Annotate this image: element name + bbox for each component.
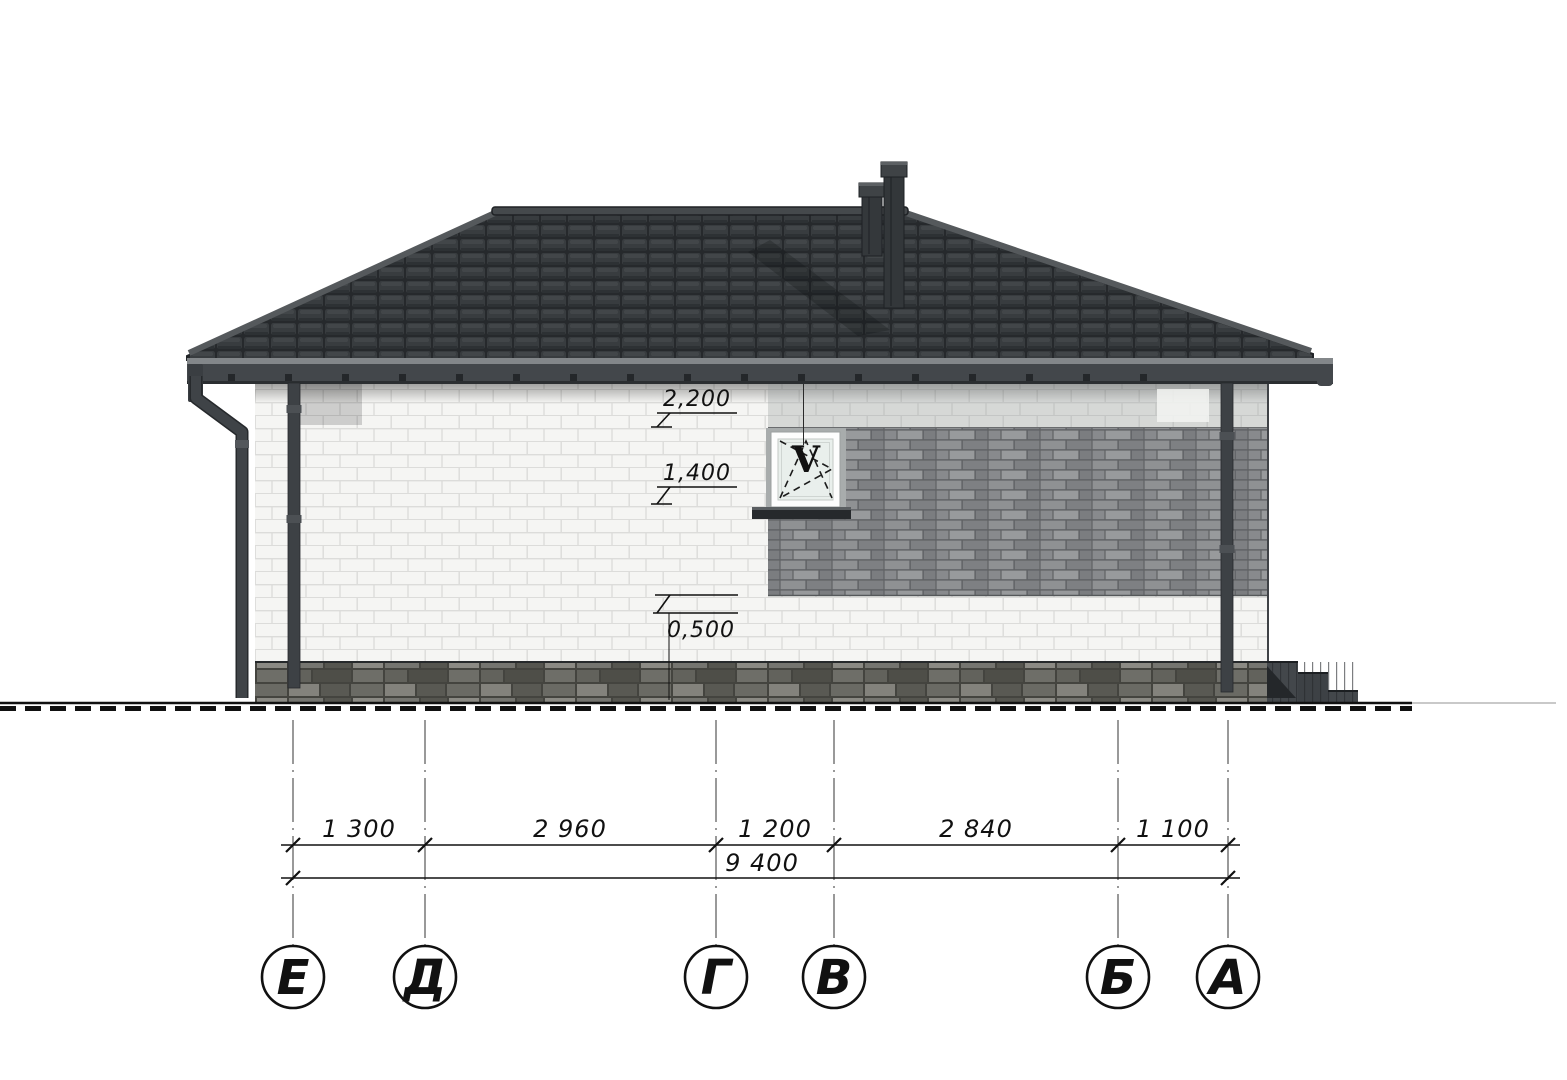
gutter-end-right (1317, 364, 1333, 386)
entry-steps (1267, 662, 1358, 703)
vent-pipe-small (862, 196, 882, 256)
axis-label-D: Д (402, 950, 447, 1006)
axis-bubbles: Е Д Г В Б А (262, 946, 1259, 1008)
axis-bubble-V: В (803, 946, 865, 1008)
dim-label-2: 2 960 (533, 815, 607, 843)
plinth (255, 662, 1268, 703)
axis-bubble-G: Г (685, 946, 747, 1008)
axis-label-G: Г (701, 950, 734, 1006)
axis-bubble-D: Д (394, 946, 456, 1008)
elevation-svg: V (0, 0, 1567, 1080)
dim-label-3: 1 200 (738, 815, 812, 843)
downpipe-left-wall (288, 383, 300, 688)
dim-label-total: 9 400 (725, 849, 799, 877)
corner-shadow (300, 383, 362, 425)
roof (187, 207, 1313, 360)
axis-bubble-A: А (1197, 946, 1259, 1008)
axis-bubble-B: Б (1087, 946, 1149, 1008)
downpipe-left-outer (196, 376, 242, 698)
axis-label-V: В (816, 950, 853, 1006)
window-mark: V (791, 439, 821, 481)
axis-label-A: А (1205, 950, 1246, 1006)
dim-label-4: 2 840 (939, 815, 1013, 843)
soffit-brackets (210, 374, 1195, 381)
ground-line (0, 703, 1556, 709)
dim-label-5: 1 100 (1136, 815, 1210, 843)
axis-label-B: Б (1100, 950, 1137, 1006)
axis-bubble-E: Е (262, 946, 324, 1008)
axis-label-E: Е (277, 950, 310, 1006)
elevation-drawing: V (0, 0, 1567, 1080)
light-reflection (1157, 389, 1209, 422)
level-label-1: 2,200 (663, 387, 731, 412)
ridge-cap (492, 207, 908, 215)
vent-pipe-tall (884, 176, 904, 308)
level-label-2: 1,400 (663, 461, 731, 486)
downpipe-right-wall (1221, 383, 1233, 692)
window: V (752, 428, 851, 519)
dim-label-1: 1 300 (322, 815, 396, 843)
roof-tiles (187, 214, 1313, 360)
level-label-3: 0,500 (667, 618, 735, 643)
